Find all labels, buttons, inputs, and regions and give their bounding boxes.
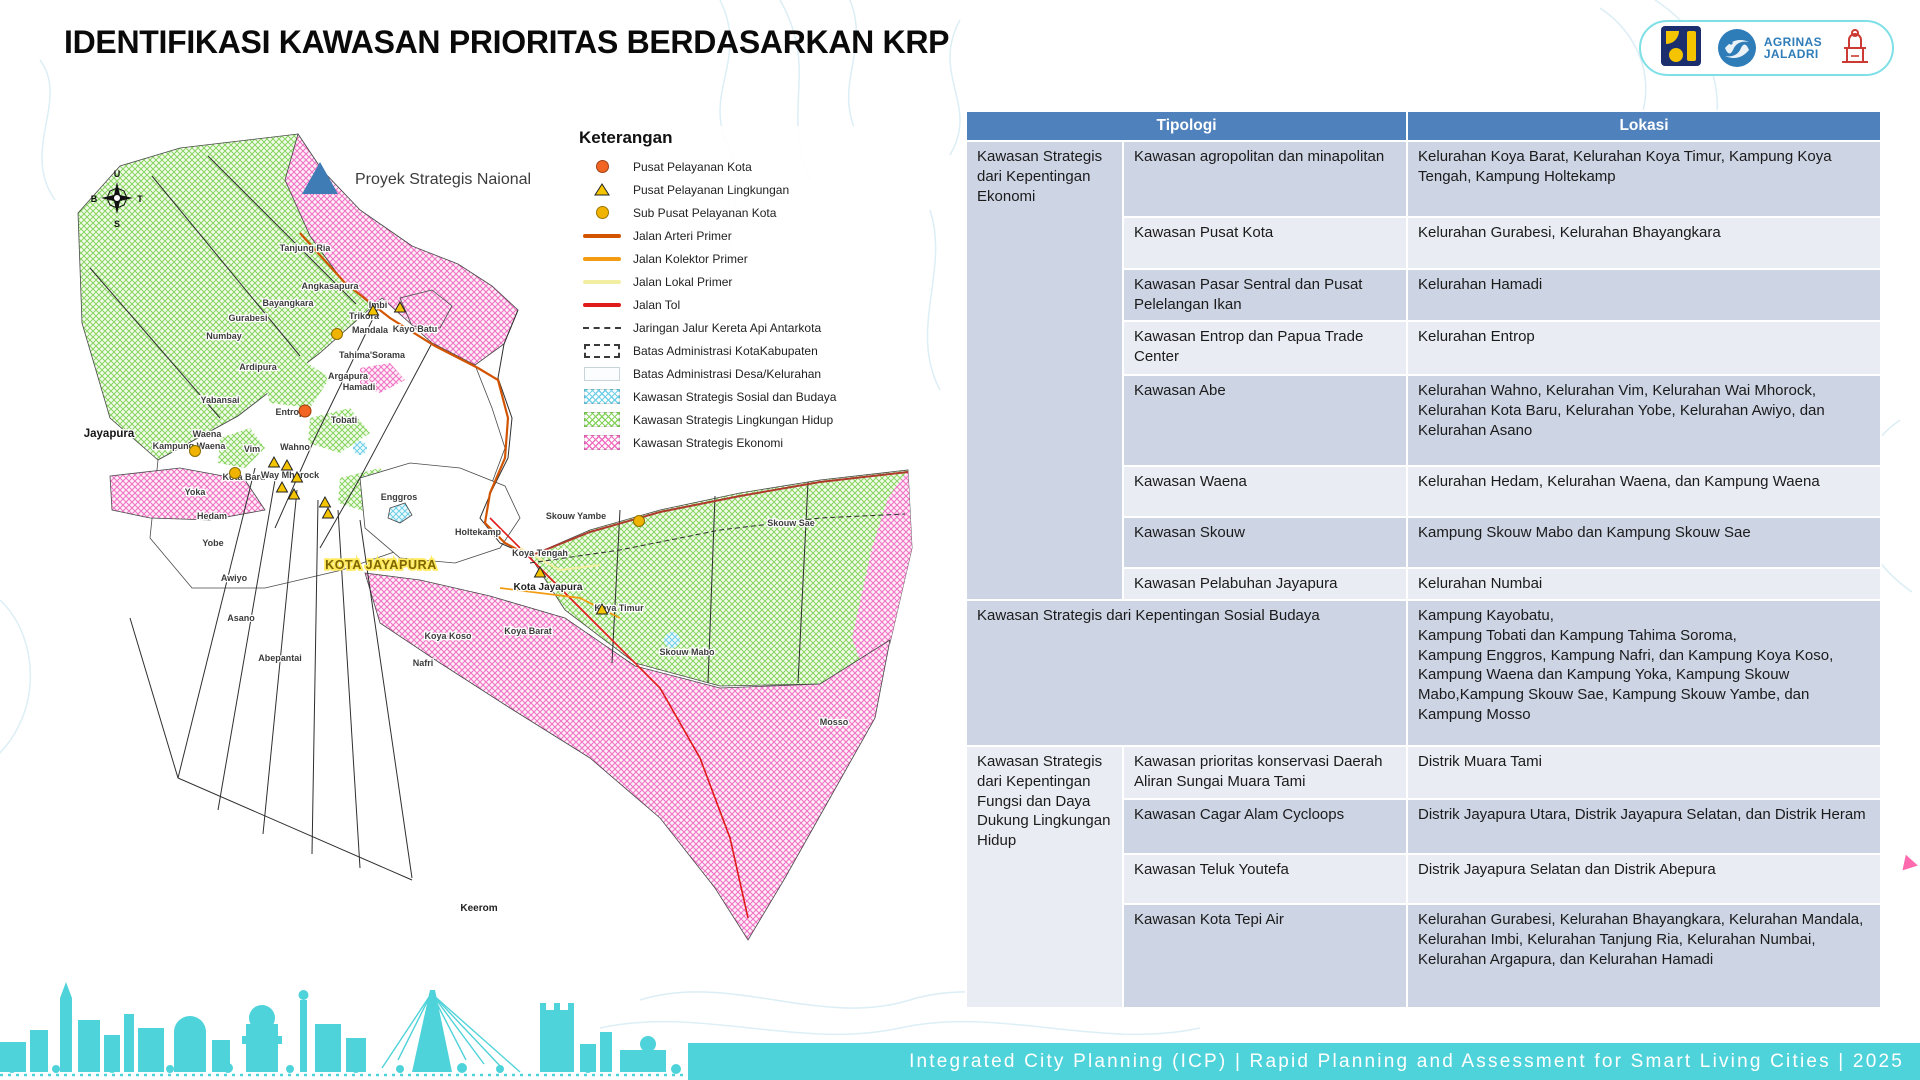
map-label: Asano	[227, 613, 255, 623]
map-label: Keerom	[460, 903, 497, 914]
legend-item: Sub Pusat Pelayanan Kota	[579, 201, 879, 224]
table-cell: Kawasan agropolitan dan minapolitan	[1123, 141, 1407, 217]
agrinas-jaladri-logo: AGRINAS JALADRI	[1717, 28, 1822, 68]
map-label: Vim	[244, 444, 260, 454]
legend-swatch-icon	[579, 303, 625, 307]
svg-text:U: U	[114, 169, 121, 179]
header-tipologi: Tipologi	[966, 111, 1407, 141]
map-label: Hamadi	[343, 382, 376, 392]
map-label: Skouw Mabo	[659, 647, 715, 657]
legend-item: Kawasan Strategis Ekonomi	[579, 431, 879, 454]
table-row: Kawasan Strategis dari Kepentingan Fungs…	[966, 746, 1881, 799]
map-label: Yobe	[202, 538, 223, 548]
table-cell: Kawasan Pasar Sentral dan Pusat Pelelang…	[1123, 269, 1407, 321]
table-cell: Kelurahan Entrop	[1407, 321, 1881, 375]
red-emblem-icon	[1838, 26, 1872, 71]
table-cell: Kawasan Abe	[1123, 375, 1407, 466]
table-cell: Kelurahan Gurabesi, Kelurahan Bhayangkar…	[1407, 904, 1881, 1008]
krp-table: Tipologi Lokasi Kawasan Strategis dari K…	[965, 110, 1882, 1009]
map-label: Mandala	[352, 325, 389, 335]
map-label: Yabansai	[200, 395, 239, 405]
legend-swatch-icon	[579, 280, 625, 284]
map-label: Jayapura	[84, 428, 135, 440]
table-cell: Kawasan Cagar Alam Cycloops	[1123, 799, 1407, 854]
legend-swatch-icon	[579, 389, 625, 404]
city-skyline-silhouette	[0, 980, 720, 1080]
legend-swatch-icon	[579, 344, 625, 358]
legend-item-label: Jalan Arteri Primer	[633, 229, 732, 243]
table-cell: Kelurahan Hedam, Kelurahan Waena, dan Ka…	[1407, 466, 1881, 517]
map-label: Kota Jayapura	[514, 582, 583, 593]
legend-title: Keterangan	[579, 128, 879, 148]
map-label: Tahima'Sorama	[339, 350, 406, 360]
footer-bar: Integrated City Planning (ICP) | Rapid P…	[688, 1043, 1920, 1080]
legend-swatch-icon	[579, 234, 625, 238]
legend-swatch-icon	[579, 183, 625, 196]
map-label: Nafri	[413, 658, 434, 668]
map-label: Abepantai	[258, 653, 302, 663]
tipologi-group-cell: Kawasan Strategis dari Kepentingan Fungs…	[966, 746, 1123, 1008]
svg-text:B: B	[91, 194, 98, 204]
agrinas-logo-text: AGRINAS JALADRI	[1764, 36, 1822, 60]
header-lokasi: Lokasi	[1407, 111, 1881, 141]
legend-swatch-icon	[579, 206, 625, 219]
svg-text:S: S	[114, 219, 120, 229]
table-cell: Kawasan Skouw	[1123, 517, 1407, 568]
legend-item-label: Sub Pusat Pelayanan Kota	[633, 206, 776, 220]
legend-item: Batas Administrasi KotaKabupaten	[579, 339, 879, 362]
legend-item-label: Kawasan Strategis Ekonomi	[633, 436, 783, 450]
slide-page: { "slide": { "title": "IDENTIFIKASI KAWA…	[0, 0, 1920, 1080]
map-label: Mosso	[820, 717, 849, 727]
map-label: Ardipura	[239, 362, 277, 372]
map-label: Kota Baru	[222, 472, 265, 482]
table-cell: Kelurahan Numbai	[1407, 568, 1881, 600]
map-label: Way Mhorock	[261, 470, 320, 480]
sub-pusat-pelayanan-kota-icon	[230, 468, 241, 479]
pu-logo-icon	[1661, 26, 1701, 71]
map-label: Koya Barat	[504, 626, 552, 636]
map-label: Tanjung Ria	[280, 243, 332, 253]
legend-item-label: Batas Administrasi KotaKabupaten	[633, 344, 818, 358]
pink-arrow-decoration	[1902, 855, 1919, 874]
legend-swatch-icon	[579, 367, 625, 381]
map-label: Angkasapura	[301, 281, 359, 291]
table-cell: Kawasan Waena	[1123, 466, 1407, 517]
table-cell: Kelurahan Gurabesi, Kelurahan Bhayangkar…	[1407, 217, 1881, 269]
table-cell: Kawasan Teluk Youtefa	[1123, 854, 1407, 904]
legend-item: Jalan Lokal Primer	[579, 270, 879, 293]
legend-item-label: Kawasan Strategis Lingkungan Hidup	[633, 413, 833, 427]
table-row: Kawasan Strategis dari Kepentingan Ekono…	[966, 141, 1881, 217]
table-header-row: Tipologi Lokasi	[966, 111, 1881, 141]
legend-item-label: Batas Administrasi Desa/Kelurahan	[633, 367, 821, 381]
table-row: Kawasan Strategis dari Kepentingan Sosia…	[966, 600, 1881, 746]
svg-text:T: T	[137, 194, 143, 204]
table-cell: Kelurahan Koya Barat, Kelurahan Koya Tim…	[1407, 141, 1881, 217]
logo-pill: AGRINAS JALADRI	[1639, 20, 1894, 76]
legend-swatch-icon	[579, 257, 625, 261]
map-label: Numbay	[206, 331, 242, 341]
map-label: Skouw Sae	[767, 518, 815, 528]
legend-item: Jalan Kolektor Primer	[579, 247, 879, 270]
legend-item: Kawasan Strategis Lingkungan Hidup	[579, 408, 879, 431]
table-cell: Kawasan Pelabuhan Jayapura	[1123, 568, 1407, 600]
map-label: Holtekamp	[455, 527, 502, 537]
table-cell: Kawasan Entrop dan Papua Trade Center	[1123, 321, 1407, 375]
sub-pusat-pelayanan-kota-icon	[190, 446, 201, 457]
table-cell: Kawasan prioritas konservasi Daerah Alir…	[1123, 746, 1407, 799]
table-cell: Kampung Kayobatu, Kampung Tobati dan Kam…	[1407, 600, 1881, 746]
map-label: Argapura	[328, 371, 369, 381]
map-label: Enggros	[381, 492, 418, 502]
legend-swatch-icon	[579, 435, 625, 450]
legend-items: Pusat Pelayanan KotaPusat Pelayanan Ling…	[579, 155, 879, 454]
legend-item: Pusat Pelayanan Kota	[579, 155, 879, 178]
tipologi-group-cell: Kawasan Strategis dari Kepentingan Ekono…	[966, 141, 1123, 600]
legend-swatch-icon	[579, 160, 625, 173]
map-label: Skouw Yambe	[546, 511, 606, 521]
legend-item-label: Jalan Tol	[633, 298, 680, 312]
legend-item-label: Jaringan Jalur Kereta Api Antarkota	[633, 321, 821, 335]
map-label: Yoka	[185, 487, 207, 497]
table-cell: Kawasan Kota Tepi Air	[1123, 904, 1407, 1008]
legend-item-label: Jalan Lokal Primer	[633, 275, 732, 289]
psn-label: Proyek Strategis Naional	[355, 171, 531, 188]
legend-swatch-icon	[579, 327, 625, 329]
map-label: Wahno	[280, 442, 310, 452]
legend-item-label: Jalan Kolektor Primer	[633, 252, 748, 266]
legend-item-label: Pusat Pelayanan Lingkungan	[633, 183, 789, 197]
table-cell: Distrik Muara Tami	[1407, 746, 1881, 799]
map-label: Hedam	[197, 511, 227, 521]
map-label: Bayangkara	[262, 298, 314, 308]
legend-item-label: Pusat Pelayanan Kota	[633, 160, 752, 174]
map-label: Tobati	[331, 415, 357, 425]
legend-swatch-icon	[579, 412, 625, 427]
table-cell: Distrik Jayapura Selatan dan Distrik Abe…	[1407, 854, 1881, 904]
agrinas-fish-icon	[1717, 28, 1757, 68]
page-title: IDENTIFIKASI KAWASAN PRIORITAS BERDASARK…	[64, 24, 949, 61]
legend-item: Jaringan Jalur Kereta Api Antarkota	[579, 316, 879, 339]
table-cell: Distrik Jayapura Utara, Distrik Jayapura…	[1407, 799, 1881, 854]
sub-pusat-pelayanan-kota-icon	[634, 516, 645, 527]
table-cell: Kampung Skouw Mabo dan Kampung Skouw Sae	[1407, 517, 1881, 568]
sub-pusat-pelayanan-kota-icon	[332, 329, 343, 340]
legend-item: Jalan Tol	[579, 293, 879, 316]
table-cell: Kelurahan Hamadi	[1407, 269, 1881, 321]
table-cell: Kelurahan Wahno, Kelurahan Vim, Keluraha…	[1407, 375, 1881, 466]
table-cell: Kawasan Pusat Kota	[1123, 217, 1407, 269]
pusat-pelayanan-kota-icon	[299, 405, 311, 417]
map-label: Koya Koso	[424, 631, 472, 641]
tipologi-group-cell: Kawasan Strategis dari Kepentingan Sosia…	[966, 600, 1407, 746]
map-label: KOTA JAYAPURA	[325, 558, 437, 572]
legend-item-label: Kawasan Strategis Sosial dan Budaya	[633, 390, 836, 404]
map-label: Koya Tengah	[512, 548, 568, 558]
map-label: Waena	[193, 429, 223, 439]
map-label: Awiyo	[221, 573, 248, 583]
legend-item: Jalan Arteri Primer	[579, 224, 879, 247]
map-label: Kayo Batu	[393, 324, 438, 334]
legend-item: Pusat Pelayanan Lingkungan	[579, 178, 879, 201]
map-legend: Keterangan Pusat Pelayanan KotaPusat Pel…	[575, 126, 883, 456]
map-label: Gurabesi	[228, 313, 267, 323]
legend-item: Kawasan Strategis Sosial dan Budaya	[579, 385, 879, 408]
legend-item: Batas Administrasi Desa/Kelurahan	[579, 362, 879, 385]
